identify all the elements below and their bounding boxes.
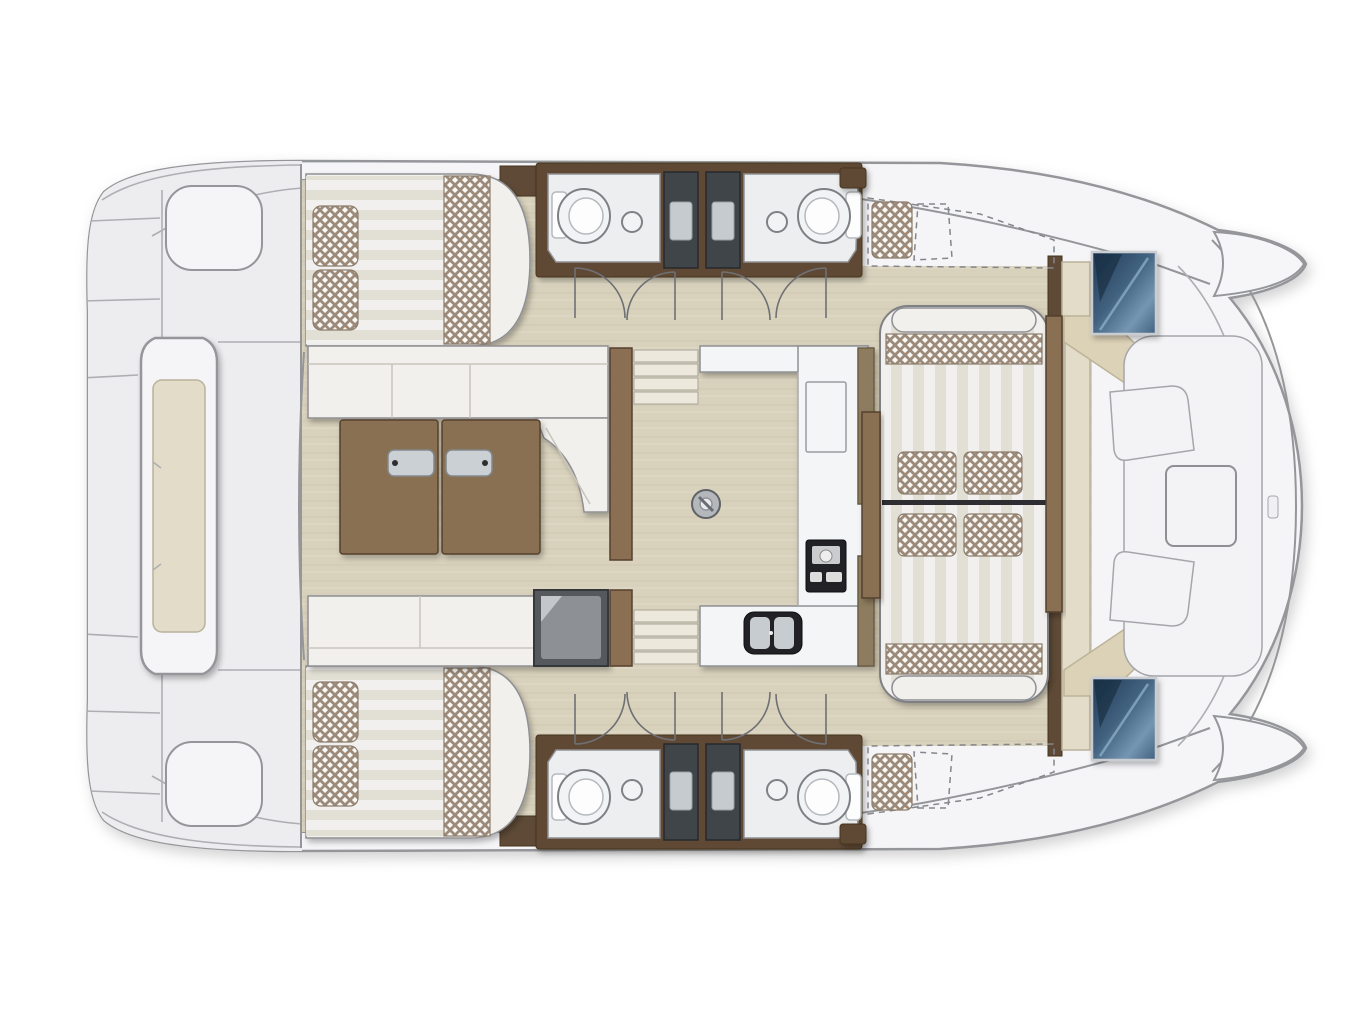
galley-stove [806,540,846,592]
stern-platform-starboard [1214,716,1304,780]
washbasin-port-forward [622,212,642,232]
engine-hatch-starboard [1092,678,1156,760]
table-leaf-right [442,420,540,554]
aft-bench-pad-port [1110,386,1194,460]
washbasin-starboard-aft [767,780,787,800]
lounge-runner-aft [886,644,1042,674]
table-leaf-left [340,420,438,554]
saloon-sideboard-forward [610,348,632,560]
sofa-aft-bench [308,596,534,666]
cockpit-side-table-port [862,412,880,598]
berth-pillow [313,270,358,330]
lounge-runner-forward [886,334,1042,364]
step [634,378,698,390]
sink-basin [750,617,770,649]
step [634,392,698,404]
toilet-bowl [805,779,839,815]
shower-tray [670,772,692,810]
foredeck-locker-starboard [166,742,262,826]
washbasin-starboard-forward [622,780,642,800]
stern-platform-port [1214,232,1304,296]
foredeck-pod-cushion [153,380,205,632]
floor-plan-drawing [0,0,1350,1012]
sink-tap [769,631,773,635]
shower-tray [712,772,734,810]
foredeck [82,160,302,852]
toilet-bowl [569,779,603,815]
shower-tray [712,202,734,240]
starboard-forward-berth [306,666,530,838]
toilet-bowl [569,198,603,234]
washbasin-port-aft [767,212,787,232]
saloon-aft-sofa [308,590,608,666]
lounge-split-line [882,500,1046,505]
lounge-headrest-forward [892,308,1036,332]
engine-hatch-port [1092,252,1156,334]
transom-cleat [1268,496,1278,518]
port-forward-berth [306,174,530,346]
optional-seat-cushion [872,202,912,258]
step [634,652,698,664]
aft-bulkhead-corner-starboard [840,824,866,844]
mast-post [692,490,720,518]
starboard-heads-block [536,735,862,849]
step [634,350,698,362]
berth-pillow [313,746,358,806]
galley-sink [744,612,802,654]
toilet-bowl [805,198,839,234]
stove-knob [810,572,822,582]
hinge-pin [482,460,488,466]
step [634,624,698,636]
step [634,638,698,650]
stove-knob [826,572,842,582]
port-heads-block [536,163,862,277]
sink-basin [774,617,794,649]
aft-bench-center-panel [1166,466,1236,546]
lounge-pillow [898,514,956,556]
stove-burner [820,550,832,562]
aft-bulkhead-corner-port [840,168,866,188]
hinge-pin [392,460,398,466]
cockpit-lounge [880,306,1048,702]
step [634,364,698,376]
step [634,610,698,622]
aft-bench-pad-starboard [1110,552,1194,626]
berth-runner [444,668,490,836]
lounge-pillow [964,452,1022,494]
lounge-headrest-aft [892,676,1036,700]
shower-tray [670,202,692,240]
foredeck-locker-port [166,186,262,270]
sofa-forward-bench [308,346,608,418]
optional-seat-cushion [872,754,912,810]
berth-runner [444,176,490,344]
lounge-pillow [898,452,956,494]
saloon-sideboard-aft [610,590,632,666]
foredeck-lounge-pod [141,338,217,674]
berth-pillow [313,206,358,266]
cockpit-side-table-starboard [1046,316,1062,612]
lounge-pillow [964,514,1022,556]
catamaran-floor-plan [0,0,1350,1012]
berth-pillow [313,682,358,742]
